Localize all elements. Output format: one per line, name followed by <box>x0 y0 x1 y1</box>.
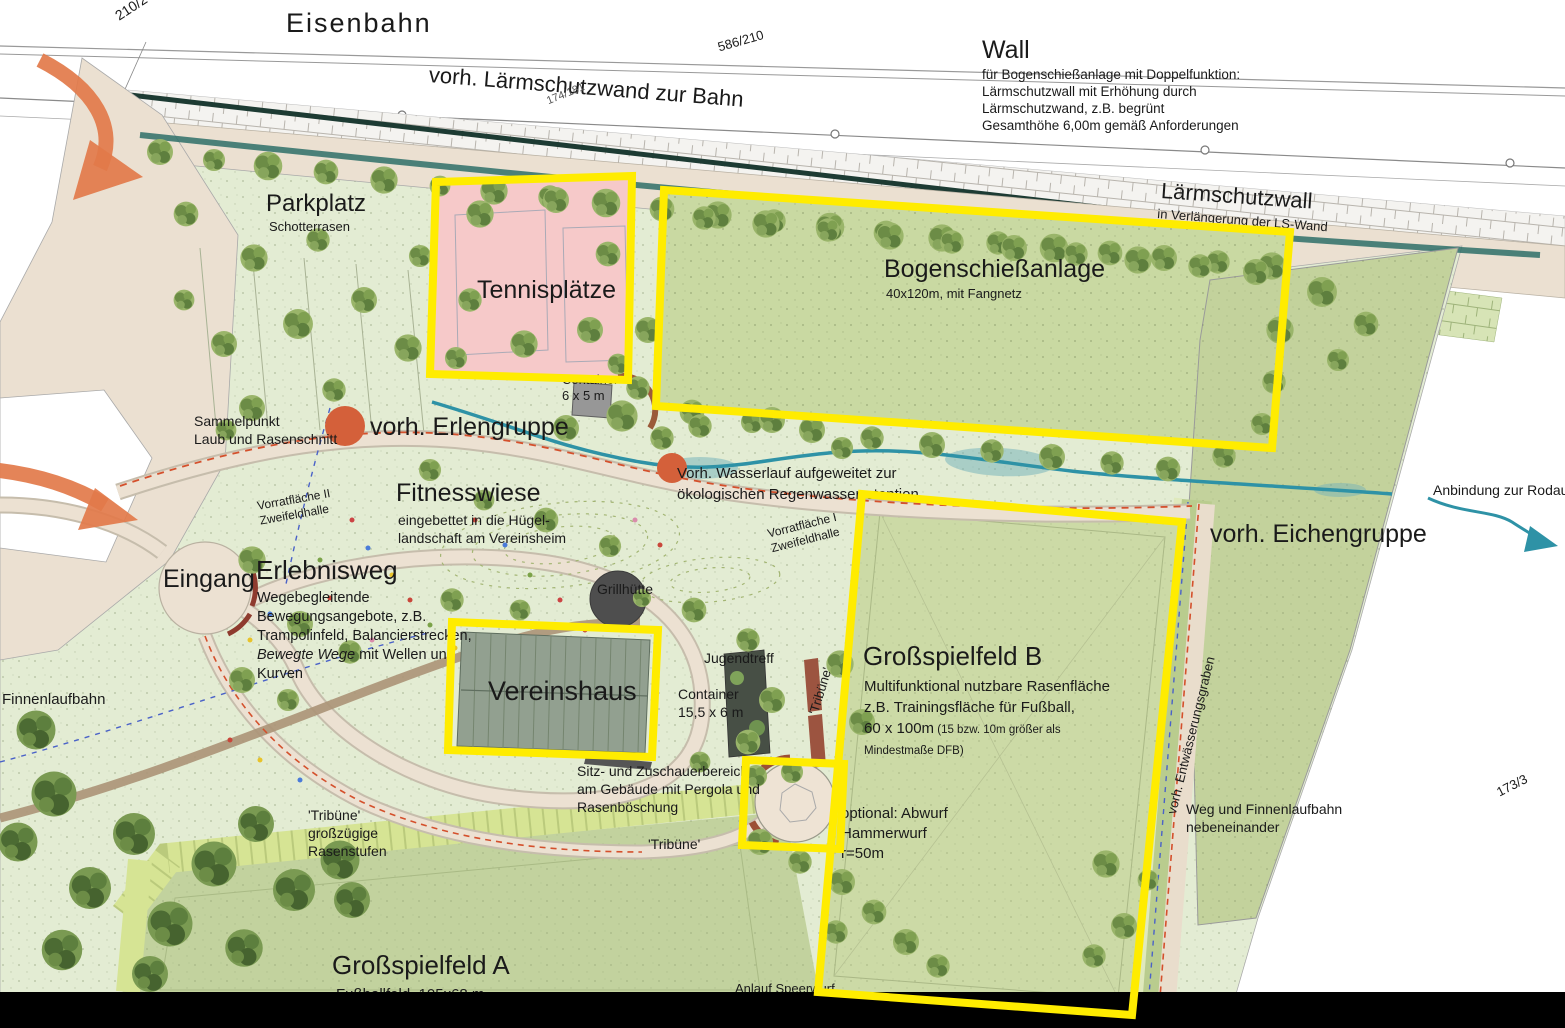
collection-point-label: Sammelpunkt Laub und Rasenschnitt <box>194 412 337 448</box>
adventure-trail-label: Erlebnisweg <box>256 555 398 586</box>
adventure-trail-description: Wegebegleitende Bewegungsangebote, z.B. … <box>257 589 472 684</box>
wall-description: für Bogenschießanlage mit Doppelfunktion… <box>982 66 1240 134</box>
finnish-track-label: Finnenlaufbahn <box>2 689 105 710</box>
grill-hut-label: Grillhütte <box>597 580 653 598</box>
archery-label: Bogenschießanlage <box>884 255 1105 284</box>
field-b-description: Multifunktional nutzbare Rasenfläche z.B… <box>864 676 1110 762</box>
field-b-label: Großspielfeld B <box>863 641 1042 672</box>
railway-label: Eisenbahn <box>286 8 432 39</box>
watercourse-label: Vorh. Wasserlauf aufgeweitet zur ökologi… <box>677 463 919 505</box>
site-plan-page: Eisenbahn 210/2 586/210 vorh. Lärmschutz… <box>0 0 1565 1028</box>
alder-group-label: vorh. Erlengruppe <box>370 413 569 442</box>
grandstand-steps-label: 'Tribüne' großzügige Rasenstufen <box>308 806 387 860</box>
seating-area-label: Sitz- und Zuschauerbereich am Gebäude mi… <box>577 762 760 816</box>
rodau-connection-label: Anbindung zur Rodau <box>1433 481 1565 499</box>
field-a-label: Großspielfeld A <box>332 950 510 981</box>
crop-black-bar <box>0 992 1565 1028</box>
youth-club-label: Jugendtreff <box>704 649 774 667</box>
grandstand-mid-label: 'Tribüne' <box>648 835 700 853</box>
parking-sublabel: Schotterrasen <box>269 219 350 235</box>
container-big-label: Container 15,5 x 6 m <box>678 685 743 721</box>
oak-group-label: vorh. Eichengruppe <box>1210 520 1427 549</box>
tennis-label: Tennisplätze <box>477 276 616 305</box>
container-small-label: Container 6 x 5 m <box>562 372 618 404</box>
path-track-label: Weg und Finnenlaufbahn nebeneinander <box>1186 800 1342 836</box>
clubhouse-label: Vereinshaus <box>488 676 637 707</box>
entrance-label: Eingang <box>163 565 255 594</box>
fitness-meadow-sublabel: eingebettet in die Hügel- landschaft am … <box>398 511 566 547</box>
hammer-throw-label: optional: Abwurf Hammerwurf r=50m <box>841 804 948 864</box>
archery-sublabel: 40x120m, mit Fangnetz <box>886 286 1022 302</box>
parking-label: Parkplatz <box>266 190 366 218</box>
site-plan-map <box>0 0 1565 1028</box>
fitness-meadow-label: Fitnesswiese <box>396 479 541 508</box>
rodau-arrow-icon <box>1428 498 1558 552</box>
wall-title: Wall <box>982 36 1030 65</box>
